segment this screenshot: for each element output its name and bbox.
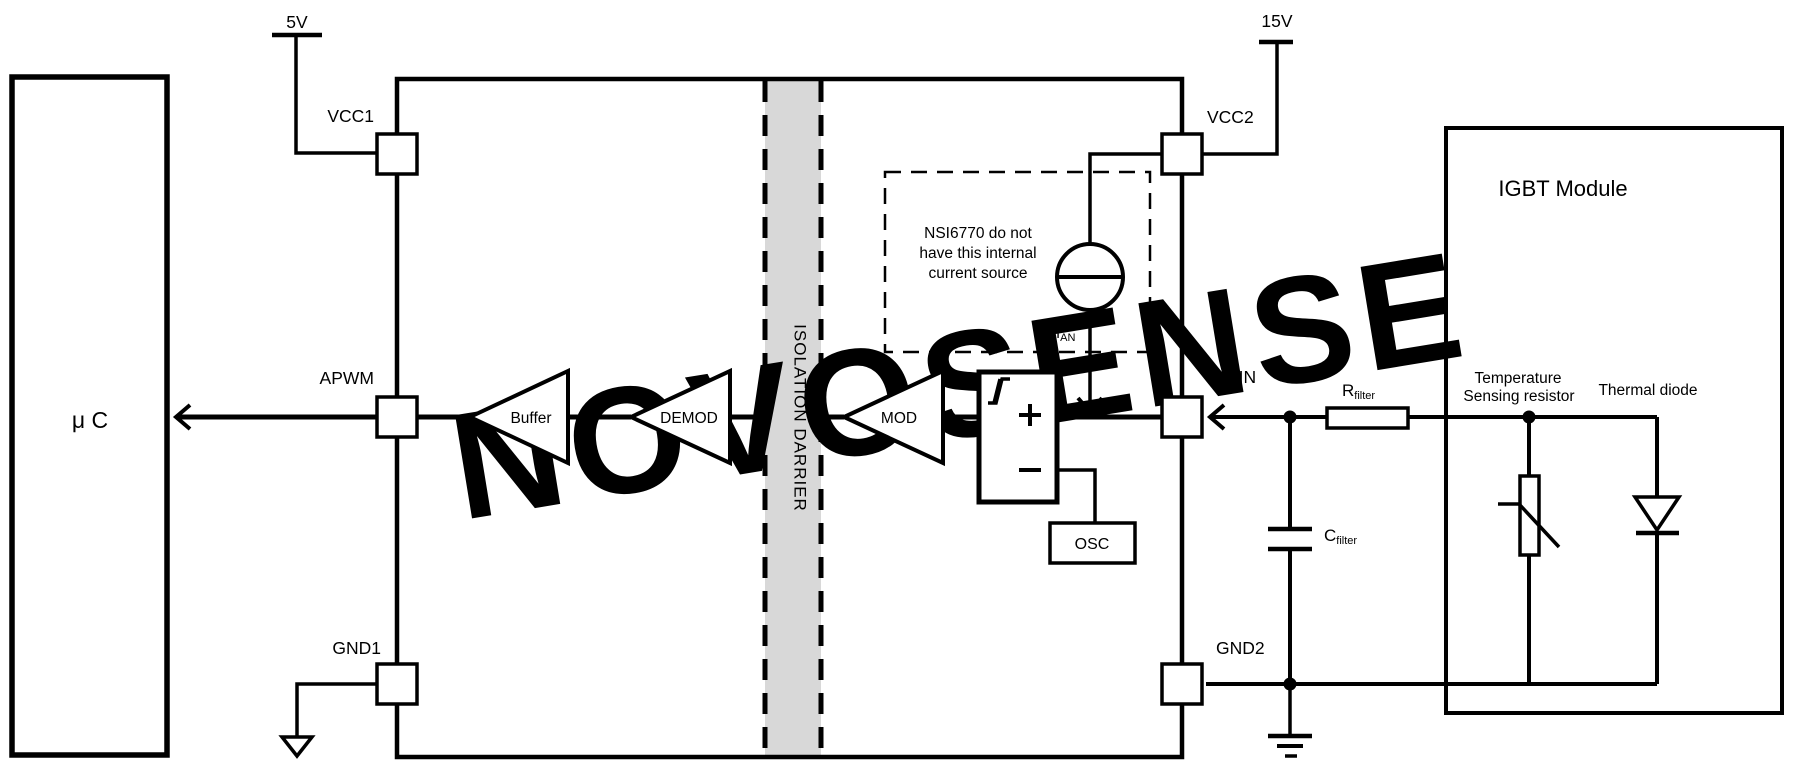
cfilter-symbol: C: [1324, 526, 1336, 545]
gnd2-pin: [1162, 664, 1202, 704]
apwm-pin-label: APWM: [320, 368, 374, 388]
earth-ground-icon: [1268, 736, 1312, 756]
osc-label: OSC: [1075, 536, 1110, 553]
junction-dots: [1284, 411, 1536, 691]
igbt-module-title: IGBT Module: [1498, 176, 1627, 201]
nsi-note-line2: have this internal: [919, 245, 1036, 262]
cfilter-label: Cfilter: [1324, 526, 1357, 547]
isolation-barrier-label: ISOLATION DARRIER: [791, 324, 810, 512]
comparator-box: [979, 372, 1057, 502]
cfilter-capacitor-icon: [1268, 529, 1312, 549]
gnd1-pin-label: GND1: [332, 638, 381, 658]
nsi-note-text: NSI6770 do not have this internal curren…: [919, 225, 1036, 282]
ian-sub: AN: [1060, 332, 1075, 344]
thermistor-icon: [1498, 476, 1559, 555]
supply-15v-label: 15V: [1261, 11, 1292, 31]
ain-pin: [1162, 397, 1202, 437]
thermistor-label-line1: Temperature: [1474, 370, 1561, 387]
vcc2-pin-label: VCC2: [1207, 107, 1254, 127]
mod-label: MOD: [881, 410, 917, 427]
cfilter-sub: filter: [1336, 535, 1357, 547]
rfilter-sub: filter: [1354, 390, 1375, 402]
rfilter-symbol: R: [1342, 381, 1354, 400]
signal-ground-icon: [282, 737, 312, 756]
gnd1-pin: [377, 664, 417, 704]
thermistor-label-line2: Sensing resistor: [1463, 388, 1574, 405]
vcc1-pin-label: VCC1: [327, 106, 374, 126]
nsi-note-line1: NSI6770 do not: [924, 225, 1032, 242]
nsi-note-line3: current source: [928, 265, 1027, 282]
schematic-canvas: NOVOSENSE: [0, 0, 1799, 779]
thermal-diode-label: Thermal diode: [1598, 382, 1697, 399]
demod-label: DEMOD: [660, 410, 718, 427]
vcc2-pin: [1162, 134, 1202, 174]
thermal-diode-icon: [1635, 497, 1679, 533]
igbt-module-box: [1446, 128, 1782, 713]
rfilter-resistor-icon: [1327, 408, 1408, 428]
isolated-temperature-sensing-schematic: NOVOSENSE: [0, 0, 1799, 779]
current-source-icon: [1057, 244, 1123, 310]
gnd2-pin-label: GND2: [1216, 638, 1265, 658]
mcu-label: μ C: [72, 407, 108, 433]
apwm-pin: [377, 397, 417, 437]
supply-5v-label: 5V: [286, 12, 308, 32]
ain-pin-label: AIN: [1227, 367, 1256, 387]
vcc1-pin: [377, 134, 417, 174]
buffer-label: Buffer: [510, 410, 551, 427]
